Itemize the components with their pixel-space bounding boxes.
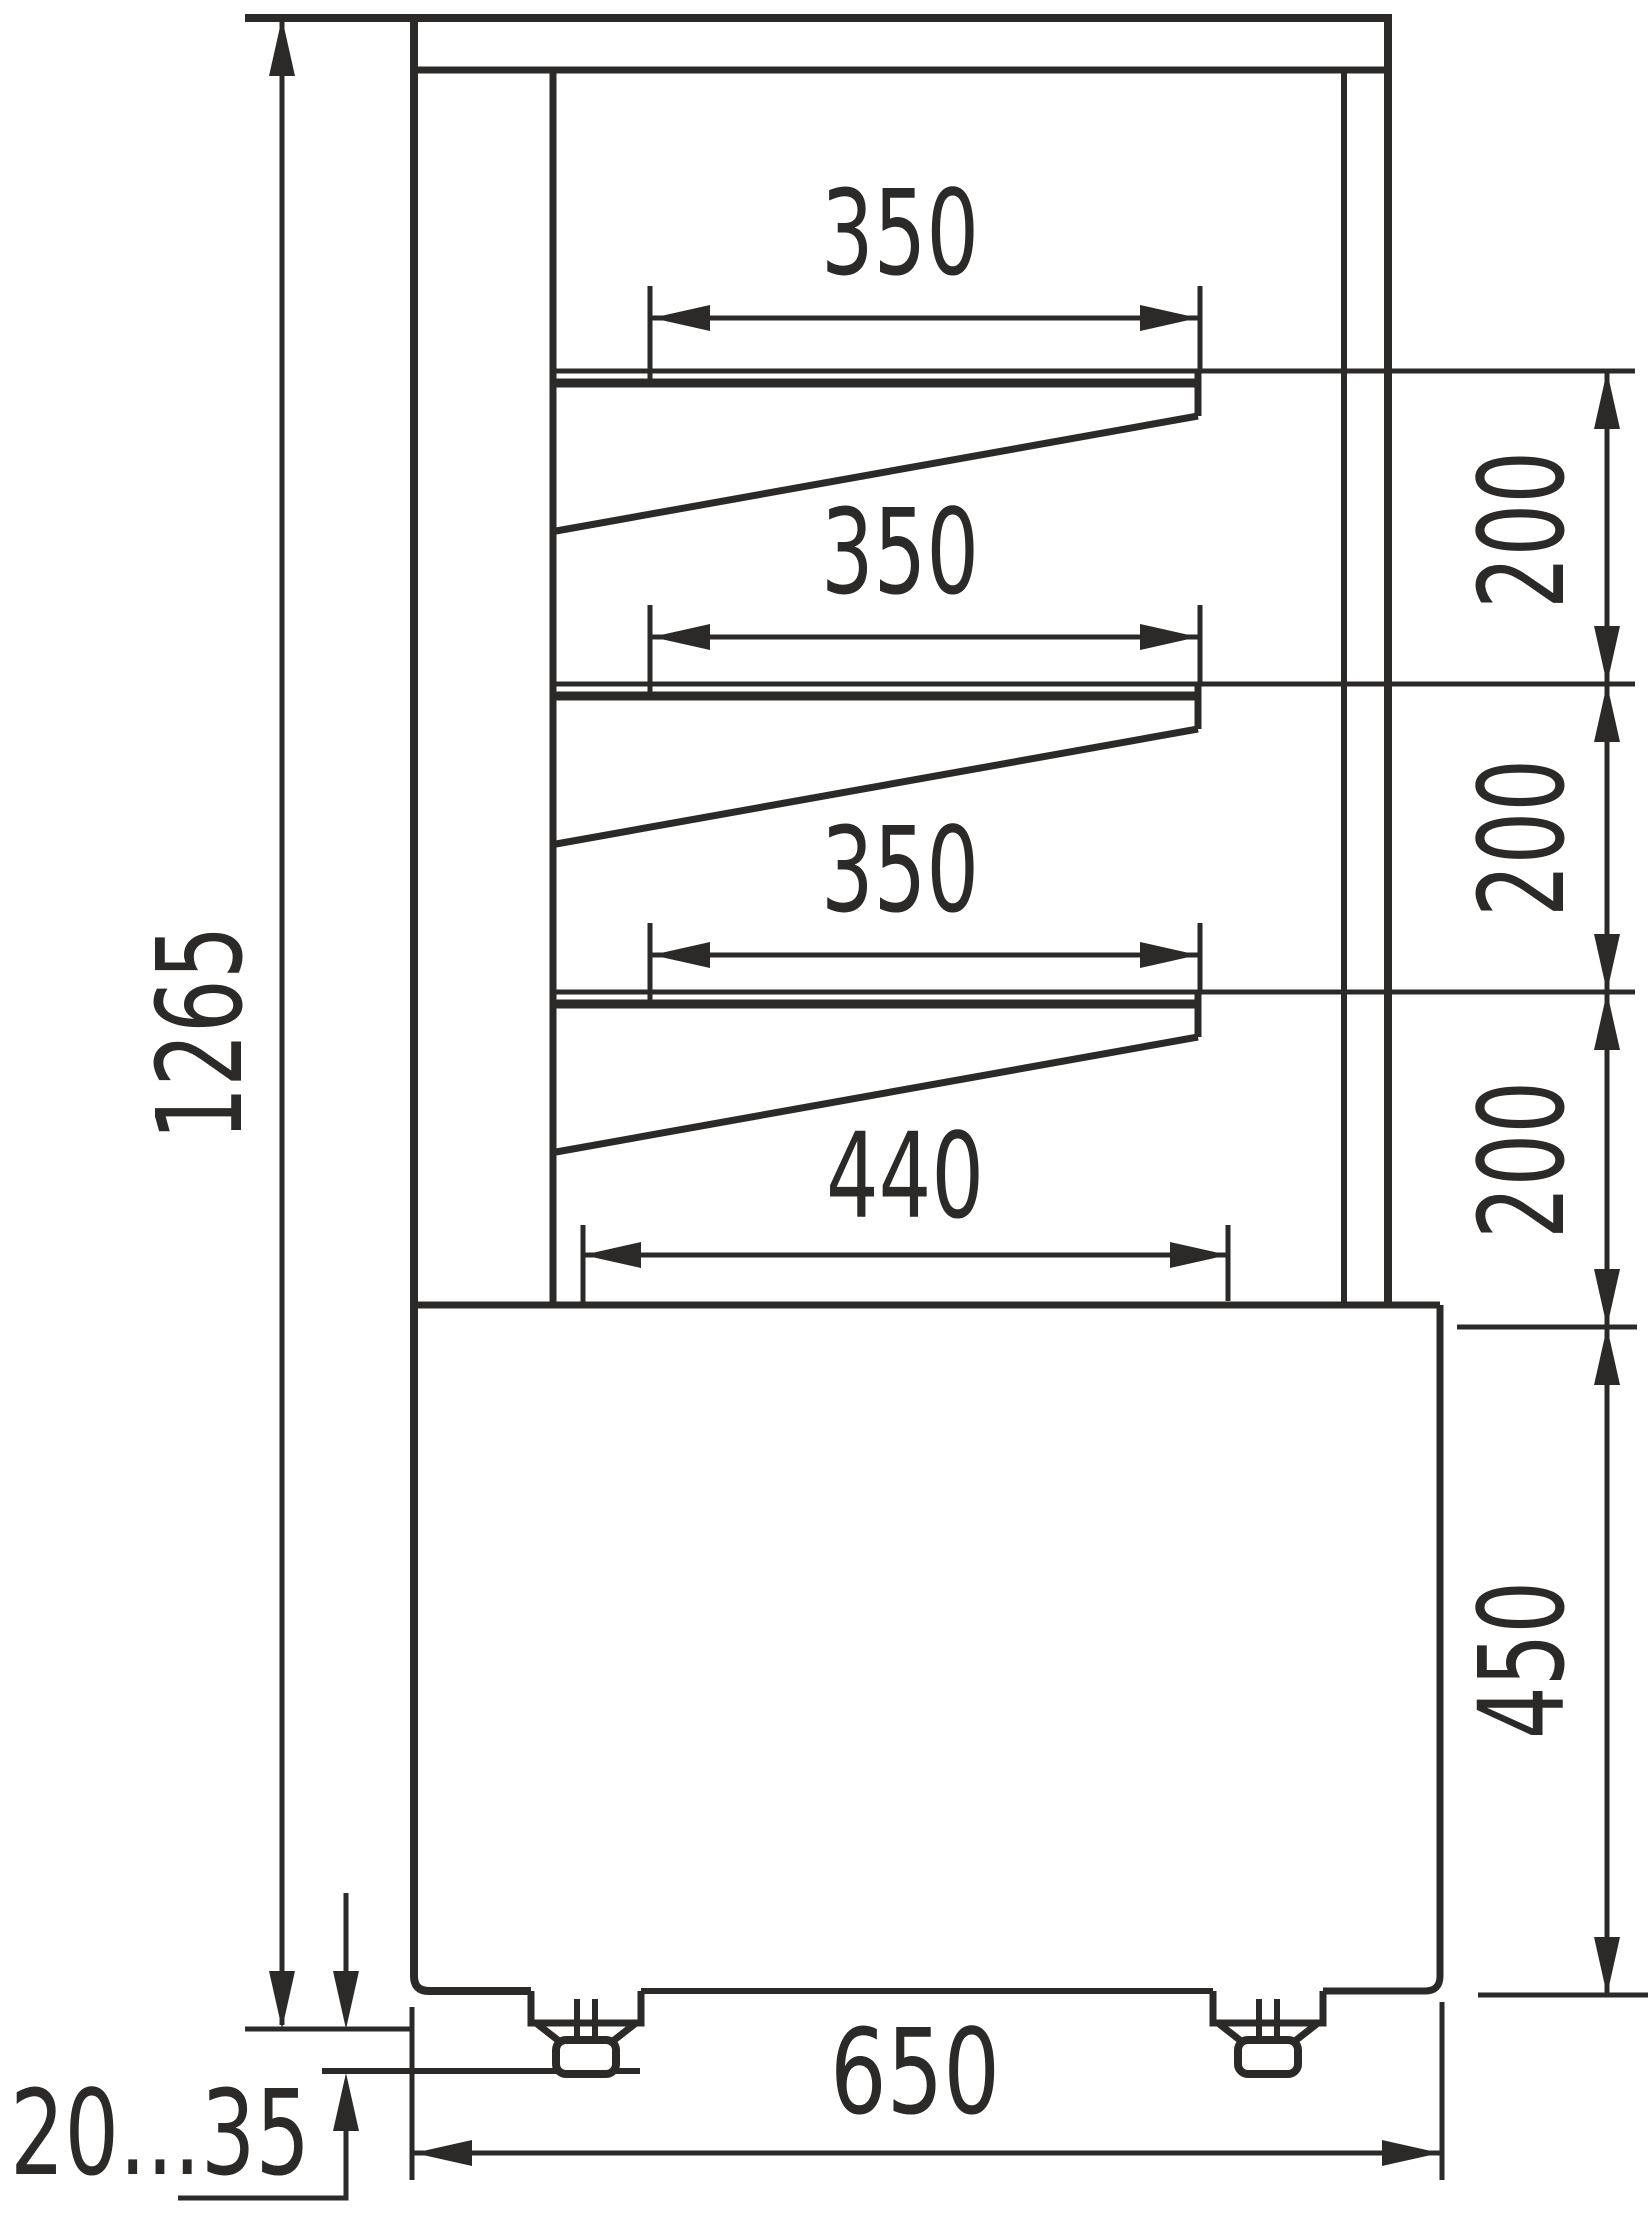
dim-label-overall-depth: 650 bbox=[830, 2003, 1000, 2141]
dim-label-shelf-gap-3: 200 bbox=[1453, 1081, 1591, 1239]
dim-label-bottom-shelf-depth: 440 bbox=[826, 1107, 984, 1245]
display-case-section-drawing: 1265 350 350 350 440 bbox=[0, 0, 1650, 2218]
dim-label-base-height: 450 bbox=[1453, 1581, 1591, 1739]
left-adjustable-foot bbox=[556, 2040, 616, 2074]
dim-label-foot-adjust: 20...35 bbox=[10, 2064, 310, 2202]
drawing-canvas: 1265 350 350 350 440 bbox=[0, 0, 1650, 2218]
dim-label-shelf2-depth: 350 bbox=[821, 483, 979, 621]
dim-label-shelf1-depth: 350 bbox=[821, 164, 979, 302]
dim-label-shelf3-depth: 350 bbox=[821, 801, 979, 939]
dim-label-overall-height: 1265 bbox=[131, 926, 269, 1141]
right-adjustable-foot bbox=[1238, 2040, 1298, 2074]
dim-label-shelf-gap-2: 200 bbox=[1453, 759, 1591, 917]
dim-label-shelf-gap-1: 200 bbox=[1453, 451, 1591, 609]
